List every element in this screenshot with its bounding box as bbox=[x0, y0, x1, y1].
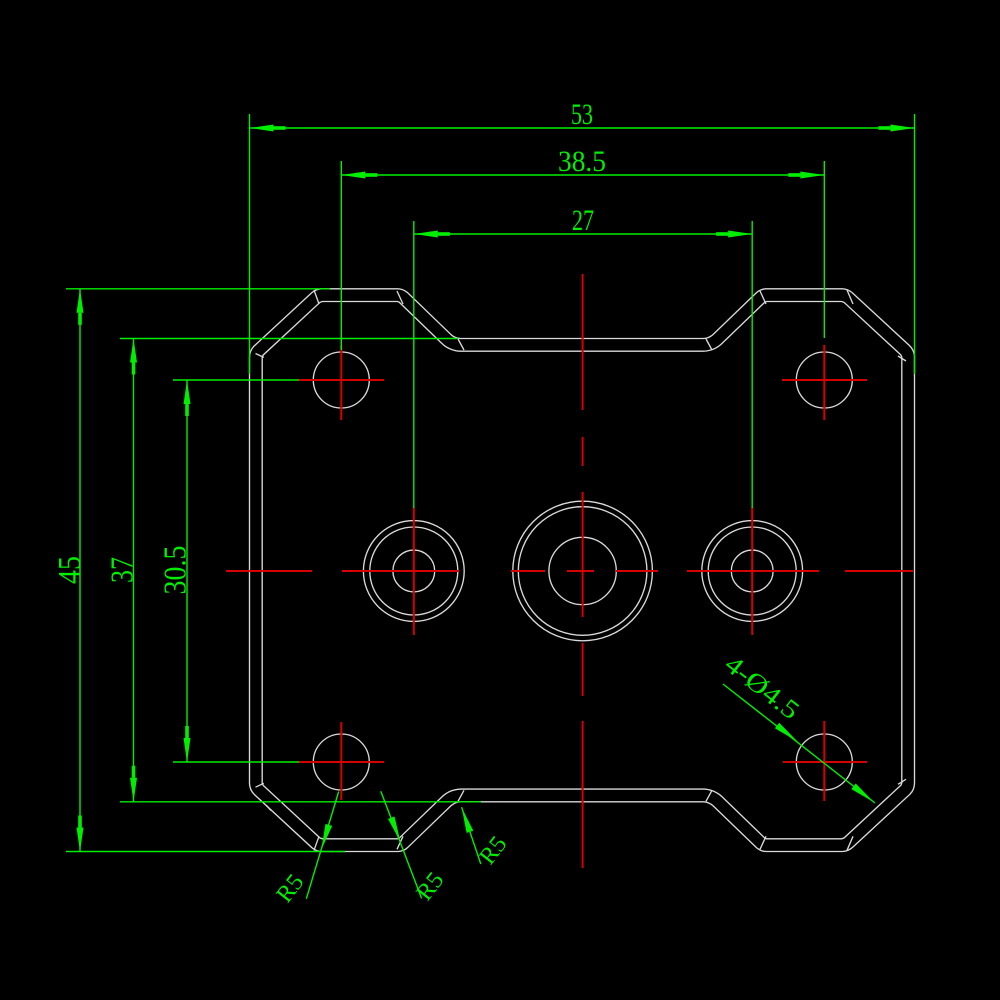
svg-text:30.5: 30.5 bbox=[157, 546, 193, 595]
svg-text:37: 37 bbox=[104, 557, 140, 583]
svg-text:45: 45 bbox=[51, 556, 87, 584]
svg-text:38.5: 38.5 bbox=[558, 145, 606, 178]
svg-text:53: 53 bbox=[571, 98, 593, 131]
svg-text:27: 27 bbox=[572, 204, 594, 237]
